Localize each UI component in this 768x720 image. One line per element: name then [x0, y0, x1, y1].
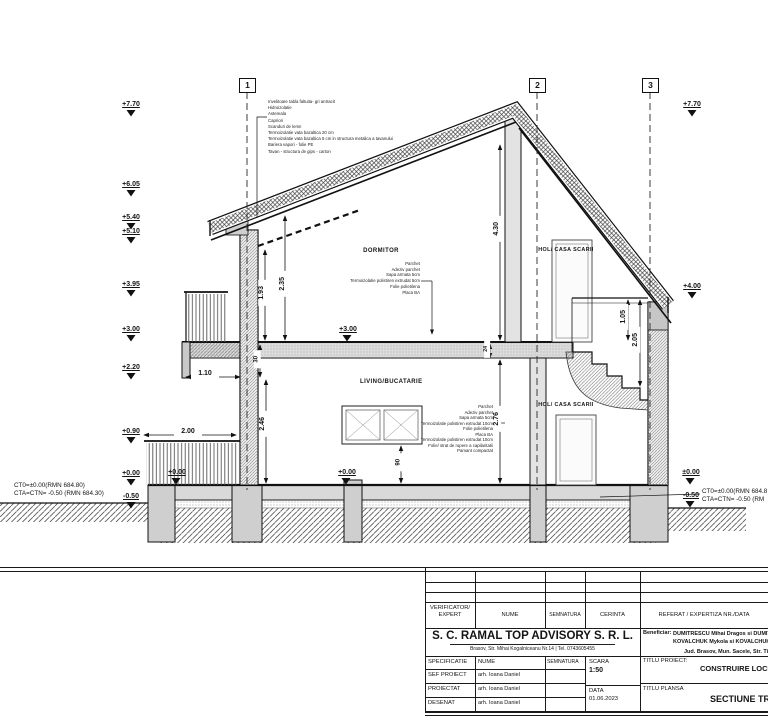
- verificator-expert-label: VERIFICATOR/ EXPERT: [426, 605, 474, 618]
- dim-30: 30: [254, 350, 261, 368]
- titleblock-line: [585, 572, 586, 628]
- titleblock-line: [475, 656, 476, 712]
- data-value: 01.06.2023: [589, 696, 618, 702]
- sheet-frame-line: [0, 571, 768, 572]
- titleblock-line: [425, 715, 768, 716]
- section-marker-2: 2: [529, 78, 546, 93]
- row-name: arh. Ioana Daniel: [478, 700, 520, 706]
- level-left-minus050: -0.50: [116, 493, 146, 501]
- sheet-frame-line: [0, 567, 768, 568]
- level-left-510: +5.10: [116, 228, 146, 236]
- ground-and-foundations: [0, 480, 746, 543]
- cerinta-header: CERINTA: [585, 612, 640, 618]
- row-label-proiectat: PROIECTAT: [428, 686, 460, 692]
- level-left-300: +3.00: [116, 326, 146, 334]
- nume-header-2: NUME: [478, 659, 495, 665]
- level-left-770: +7.70: [116, 101, 146, 109]
- balcony-railing: [184, 292, 228, 342]
- section-marker-1: 1: [239, 78, 256, 93]
- cta-note-right: CTA=CTN= -0.50 (RM: [702, 497, 764, 504]
- floor1-layer-notes: Parchet Adeziv parchet Sapa armata 5cm T…: [260, 261, 420, 295]
- level-left-220: +2.20: [116, 364, 146, 372]
- scara-value: 1:50: [589, 667, 603, 675]
- titlu-plansa-value: SECTIUNE TRAN: [710, 695, 768, 705]
- level-left-605: +6.05: [116, 181, 146, 189]
- company-name: S. C. RAMAL TOP ADVISORY S. R. L.: [425, 630, 640, 643]
- row-label-desenat: DESENAT: [428, 700, 455, 706]
- scara-label: SCARA: [589, 659, 609, 665]
- dim-200: 2.00: [174, 428, 202, 436]
- ct0-note-left: CT0=±0.00(RMN 684.80): [14, 483, 85, 490]
- titleblock-line: [425, 669, 585, 670]
- dim-110: 1.10: [191, 370, 219, 378]
- ct0-note-right: CT0=±0.00(RMN 684.8: [702, 489, 767, 496]
- row-label-sef-proiect: SEF PROIECT: [428, 672, 467, 678]
- drawing-sheet: 1 2 3 +7.70 +6.05 +5.40 +5.10 +3.95 +3.0…: [0, 0, 768, 720]
- level-slab-000: +0.00: [332, 469, 362, 477]
- room-label-hol-parter: HOL/ CASA SCARII: [538, 403, 594, 409]
- titlu-plansa-label: TITLU PLANSA: [643, 686, 684, 692]
- titleblock-line: [585, 685, 640, 686]
- dim-430: 4.30: [493, 216, 501, 242]
- beneficiar-label: Beneficiar:: [643, 630, 671, 636]
- terrace-railing: [144, 441, 240, 485]
- level-right-zero: ±0.00: [676, 469, 706, 477]
- titleblock-line: [640, 683, 768, 684]
- titleblock-line: [545, 572, 546, 628]
- dim-24: 24: [484, 340, 490, 358]
- dim-90: 90: [396, 453, 403, 471]
- section-marker-3: 3: [642, 78, 659, 93]
- semnatura-header-2: SEMNATURA: [547, 660, 579, 666]
- room-label-dormitor: DORMITOR: [361, 248, 401, 255]
- floor1-note-line: Placa BA: [260, 290, 420, 296]
- floor0-layer-notes: Parchet Adeziv parchet Sapa armata 5cm T…: [333, 404, 493, 454]
- referat-header: REFERAT / EXPERTIZA NR./DATA: [640, 612, 768, 618]
- titleblock-line: [425, 592, 768, 593]
- specificatie-header: SPECIFICATIE: [428, 659, 467, 665]
- titleblock-line: [640, 572, 641, 712]
- level-left-090: +0.90: [116, 428, 146, 436]
- level-left-540: +5.40: [116, 214, 146, 222]
- dim-246: 2.46: [259, 411, 267, 437]
- beneficiar-line2: KOVALCHUK Mykola si KOVALCHUK Natali: [673, 639, 768, 645]
- titleblock-line: [585, 656, 586, 712]
- dim-205: 2.05: [632, 327, 640, 353]
- beneficiar-line3: Jud. Brasov, Mun. Sacele, Str. Tim: [684, 649, 768, 655]
- row-name: arh. Ioana Daniel: [478, 672, 520, 678]
- titleblock-line: [425, 683, 585, 684]
- level-terrace-000: +0.00: [162, 469, 192, 477]
- room-label-living: LIVING/BUCATARIE: [360, 379, 422, 386]
- titleblock-line: [425, 582, 768, 583]
- nume-header: NUME: [475, 612, 545, 618]
- titleblock-line: [425, 628, 768, 629]
- titleblock-line: [475, 572, 476, 628]
- titleblock-line: [425, 711, 768, 713]
- titleblock-line: [425, 697, 585, 698]
- titleblock-line: [545, 656, 546, 712]
- semnatura-header: SEMNATURA: [545, 613, 585, 619]
- level-floor1-300: +3.00: [333, 326, 363, 334]
- data-label: DATA: [589, 688, 604, 694]
- titleblock-line: [425, 656, 768, 657]
- dim-276: 2.76: [493, 406, 501, 432]
- dim-105: 1.05: [620, 304, 628, 330]
- level-right-770: +7.70: [677, 101, 707, 109]
- level-left-000: +0.00: [116, 470, 146, 478]
- level-right-400: +4.00: [677, 283, 707, 291]
- titlu-proiect-label: TITLU PROIECT:: [643, 658, 687, 664]
- row-name: arh. Ioana Daniel: [478, 686, 520, 692]
- titleblock-line: [425, 602, 768, 603]
- roof-note-line: Tavan - structura de gips - carton: [268, 149, 393, 155]
- cta-note-left: CTA=CTN= -0.50 (RMN 684.30): [14, 491, 104, 498]
- titlu-proiect-value: CONSTRUIRE LOCUINT: [700, 665, 768, 673]
- company-address: Brasov, Str. Mihai Kogalniceanu Nr.14 | …: [450, 644, 615, 652]
- floor0-note-line: Pamant compactat: [333, 448, 493, 454]
- level-left-395: +3.95: [116, 281, 146, 289]
- roof-layer-notes: Invelitoare tabla faltuita- gri antracit…: [268, 99, 393, 155]
- room-label-hol-etaj: HOL/ CASA SCARII: [538, 248, 594, 254]
- beneficiar-line1: DUMITRESCU Mihai Dragos si DUMITR: [673, 631, 768, 637]
